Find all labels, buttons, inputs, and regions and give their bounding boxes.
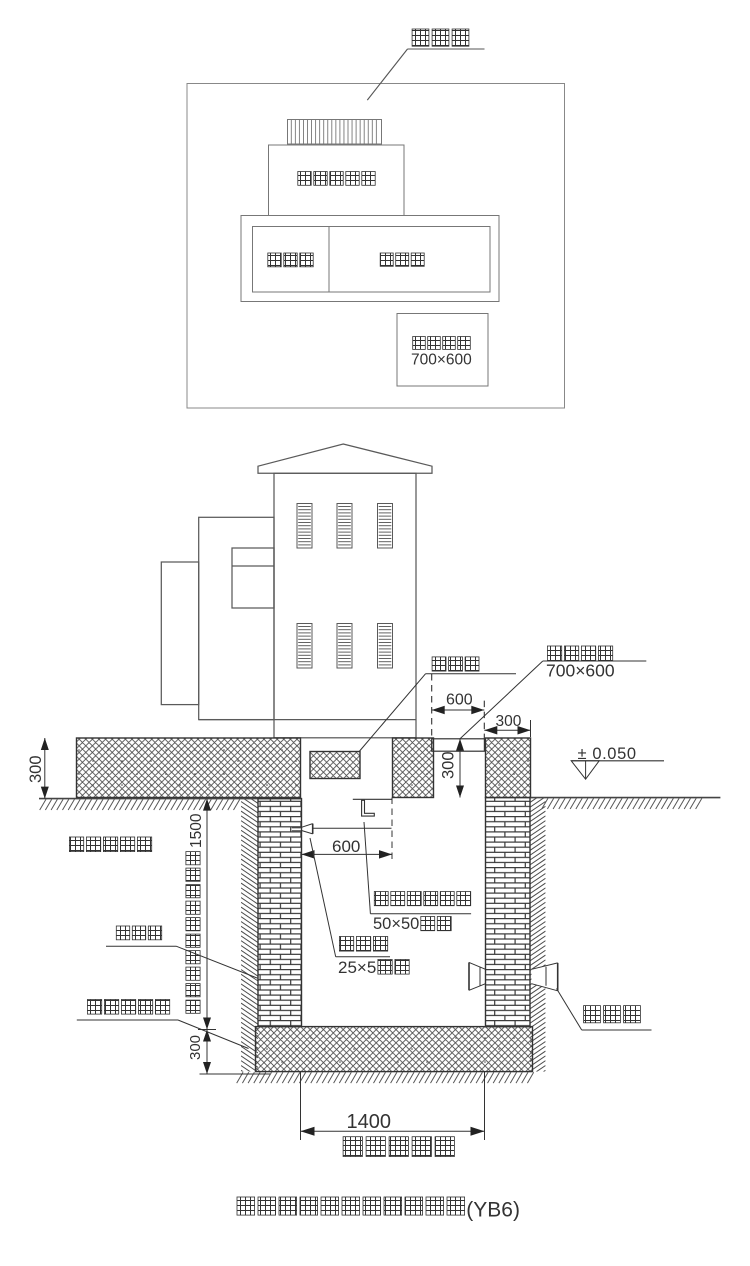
svg-text:600: 600	[446, 692, 473, 709]
svg-text:600: 600	[332, 837, 360, 856]
svg-text:300: 300	[496, 713, 522, 730]
svg-text:300: 300	[187, 1035, 204, 1060]
svg-text:700×600: 700×600	[546, 661, 615, 681]
svg-text:1500: 1500	[188, 813, 205, 848]
svg-text:700×600: 700×600	[411, 352, 472, 369]
svg-text:± 0.050: ± 0.050	[578, 745, 637, 763]
svg-text:1400: 1400	[347, 1111, 392, 1133]
svg-text:300: 300	[440, 751, 458, 779]
svg-text:25×5: 25×5	[338, 958, 376, 977]
svg-text:50×50: 50×50	[373, 915, 419, 933]
svg-text:(YB6): (YB6)	[466, 1199, 520, 1222]
svg-text:300: 300	[27, 755, 45, 783]
